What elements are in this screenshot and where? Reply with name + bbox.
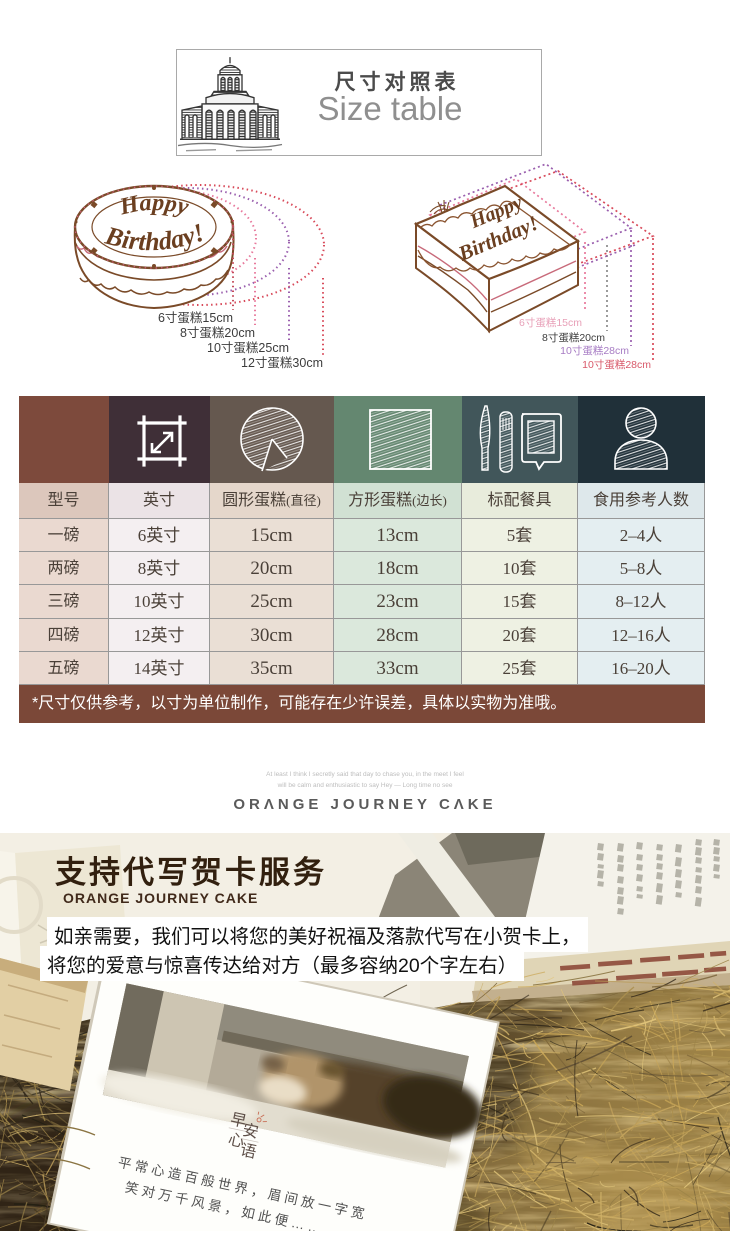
svg-text:10寸蛋糕28cm: 10寸蛋糕28cm [560,344,629,357]
svg-text:8寸蛋糕20cm: 8寸蛋糕20cm [542,331,605,344]
svg-text:8寸蛋糕20cm: 8寸蛋糕20cm [180,326,255,340]
svg-text:6寸蛋糕15cm: 6寸蛋糕15cm [519,316,582,329]
svg-text:10寸蛋糕25cm: 10寸蛋糕25cm [207,341,289,355]
svg-text:10寸蛋糕28cm: 10寸蛋糕28cm [582,358,651,371]
svg-text:6寸蛋糕15cm: 6寸蛋糕15cm [158,311,233,325]
svg-text:12寸蛋糕30cm: 12寸蛋糕30cm [241,356,323,370]
